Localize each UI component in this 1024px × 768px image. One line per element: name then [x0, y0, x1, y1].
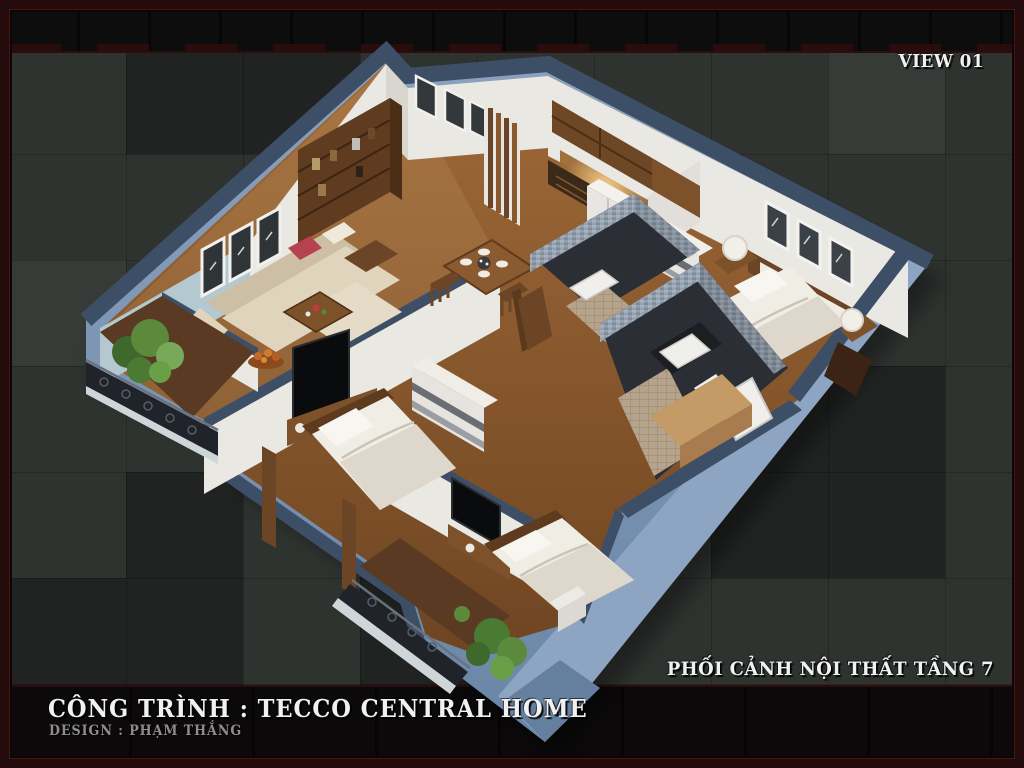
door-post [262, 446, 276, 548]
table-lamp [723, 236, 747, 260]
floor-caption: PHỐI CẢNH NỘI THẤT TẦNG 7 [667, 658, 994, 680]
table-lamp [841, 309, 863, 331]
designer-credit: DESIGN : PHẠM THẮNG [49, 723, 242, 739]
project-title: CÔNG TRÌNH : TECCO CENTRAL HOME [48, 694, 588, 723]
view-label: VIEW 01 [898, 51, 984, 72]
apartment-3d-render [0, 0, 1024, 768]
poster-stage: VIEW 01 PHỐI CẢNH NỘI THẤT TẦNG 7 CÔNG T… [0, 0, 1024, 768]
